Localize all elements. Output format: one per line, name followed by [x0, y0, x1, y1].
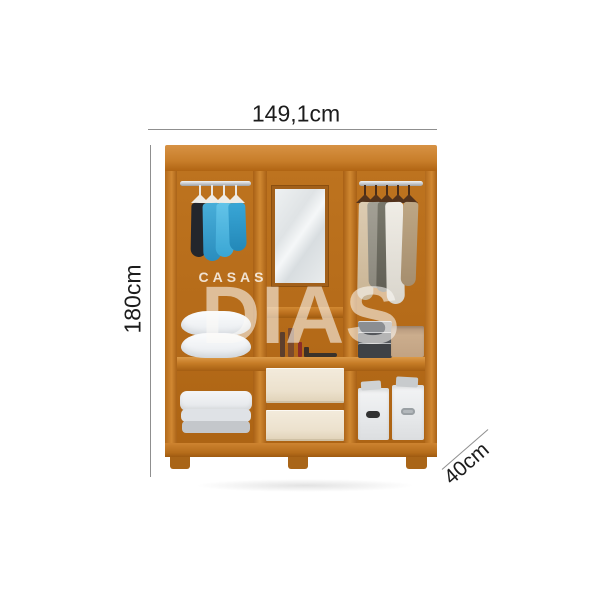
- wardrobe-left-side-panel: [165, 171, 177, 443]
- folded-blanket-layer: [182, 421, 250, 433]
- watermark-brand-main: DIAS: [201, 269, 401, 363]
- left-hanging-rod: [180, 181, 251, 186]
- right-hanging-rod: [359, 181, 423, 186]
- width-dimension-line: [148, 129, 437, 130]
- drawer-top: [266, 368, 344, 403]
- wardrobe-top-panel: [165, 145, 437, 171]
- height-dimension-label: 180cm: [120, 264, 147, 333]
- box-handle-icon: [401, 408, 415, 415]
- wardrobe-foot: [406, 457, 427, 469]
- garment-blue: [228, 203, 247, 252]
- box-contents: [396, 376, 418, 387]
- wardrobe-foot: [288, 457, 308, 469]
- wardrobe-right-side-panel: [425, 171, 437, 443]
- wardrobe-bottom-panel: [165, 443, 437, 457]
- box-contents: [361, 380, 382, 390]
- product-image: 149,1cm 180cm 40cm: [0, 0, 600, 600]
- wardrobe-foot: [170, 457, 190, 469]
- hanger-icon: [227, 194, 245, 203]
- drawer-bottom: [266, 410, 344, 441]
- garment-tan: [401, 202, 419, 286]
- box-handle-icon: [366, 411, 380, 418]
- height-dimension-line: [150, 145, 151, 477]
- width-dimension-label: 149,1cm: [252, 101, 340, 128]
- floor-shadow: [195, 479, 415, 492]
- folded-blanket: [180, 391, 252, 411]
